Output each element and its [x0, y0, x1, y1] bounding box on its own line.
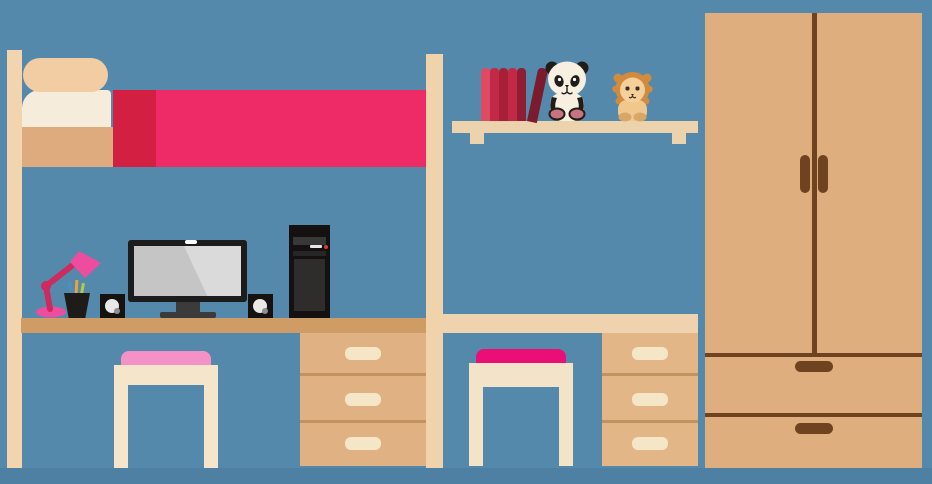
wardrobe-right-door-handle [818, 155, 828, 193]
wardrobe-drawer-handle-2 [795, 423, 833, 434]
desk-right-surface [443, 314, 698, 333]
speaker-left [100, 294, 125, 318]
book [490, 68, 499, 121]
stool-right-cushion [476, 349, 566, 364]
stool-left-leg [114, 385, 128, 468]
drawer-divider [300, 420, 426, 423]
wardrobe [705, 13, 922, 468]
speaker-cone [253, 299, 267, 313]
drawer-handle [632, 393, 668, 406]
wardrobe-divider-top [705, 353, 922, 357]
blanket-edge [113, 90, 156, 167]
bed-post-center [426, 54, 443, 468]
drawer-divider [300, 373, 426, 376]
bedroom-illustration [0, 0, 932, 484]
power-button [310, 245, 322, 248]
stool-left-leg [204, 385, 218, 468]
pillow-top [23, 58, 108, 92]
drawer-divider [602, 373, 698, 376]
drawer-unit-left [300, 333, 426, 466]
wall-shelf [452, 121, 698, 133]
book [517, 68, 526, 121]
wardrobe-drawer-handle-1 [795, 361, 833, 372]
blanket [156, 90, 426, 167]
drawer-handle [345, 393, 381, 406]
monitor-camera-notch [185, 240, 197, 244]
drawer-divider [602, 420, 698, 423]
drawer-handle [632, 347, 668, 360]
bed-post-left [7, 50, 22, 468]
book [481, 68, 490, 121]
stool-left-seat [114, 365, 218, 385]
pillow-bottom [22, 90, 111, 127]
stool-right-leg [469, 387, 483, 466]
floor [0, 468, 932, 484]
pc-tower [289, 225, 330, 318]
drawer-unit-right [602, 333, 698, 466]
book [508, 68, 517, 121]
speaker-cone [105, 299, 119, 313]
shelf-bracket [672, 133, 686, 144]
stool-right-seat [469, 363, 573, 387]
drawer-handle [345, 347, 381, 360]
monitor-screen [134, 246, 241, 296]
wardrobe-divider-bottom [705, 413, 922, 417]
drawer-handle [345, 437, 381, 450]
monitor-stand-base [160, 312, 216, 318]
drive-bay [293, 251, 326, 256]
desk-left-surface [21, 318, 426, 333]
drive-bay [293, 237, 326, 245]
wardrobe-left-door-handle [800, 155, 810, 193]
power-led [324, 245, 328, 249]
wardrobe-door-gap [812, 13, 817, 353]
bed-mattress [22, 127, 113, 167]
book [499, 68, 508, 121]
drawer-handle [632, 437, 668, 450]
stool-left-cushion [121, 351, 211, 366]
tower-front-panel [294, 259, 325, 311]
shelf-bracket [470, 133, 484, 144]
stool-right-leg [559, 387, 573, 466]
speaker-right [248, 294, 273, 318]
